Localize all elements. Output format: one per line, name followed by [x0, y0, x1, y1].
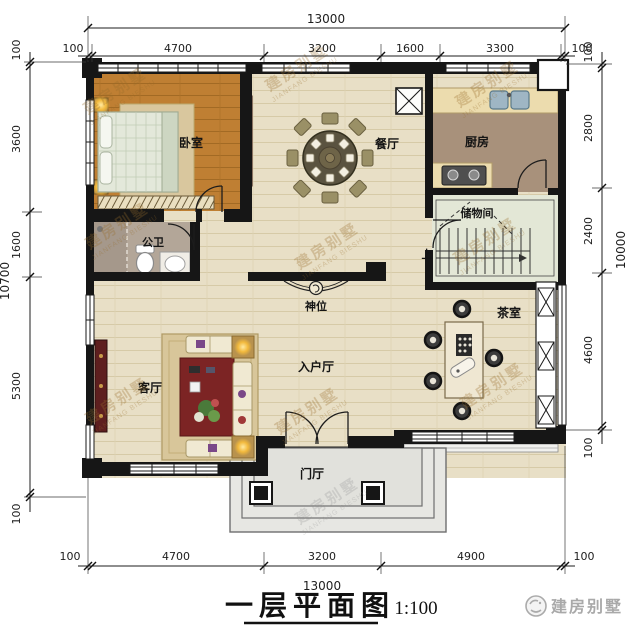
- label-storage-room: 储物间: [461, 206, 494, 220]
- wall-bedroom-right: [240, 62, 252, 222]
- wall-stairs-left-upper: [425, 195, 433, 218]
- toilet-bowl: [137, 253, 154, 274]
- burner: [448, 170, 458, 180]
- dim-right-100t: 100: [582, 42, 595, 63]
- window-bottom-tea: [412, 432, 514, 442]
- brand-logo: 建房别墅: [526, 596, 623, 616]
- label-dining-room: 餐厅: [375, 136, 399, 151]
- dim-top-4700: 4700: [164, 42, 192, 55]
- label-bedroom: 卧室: [179, 135, 203, 150]
- lamp-glow: [234, 438, 252, 456]
- pillow: [100, 152, 112, 184]
- dim-bottom-4700: 4700: [162, 550, 190, 563]
- dim-bottom-100r: 100: [574, 550, 595, 563]
- window-bottom-living: [130, 464, 218, 474]
- dim-top-100l: 100: [63, 42, 84, 55]
- dim-bottom-3200: 3200: [308, 550, 336, 563]
- faucet: [507, 93, 511, 97]
- window-x-panes: [538, 288, 554, 424]
- sofa-long: [233, 362, 252, 436]
- wall-bathroom-right: [190, 222, 200, 274]
- wall-middle-left: [86, 272, 200, 281]
- label-kitchen: 厨房: [465, 134, 489, 149]
- dim-right-total: 10000: [614, 231, 628, 269]
- plan-scale: 1:100: [394, 598, 437, 619]
- dim-top-3300: 3300: [486, 42, 514, 55]
- logo-icon: [526, 596, 546, 616]
- sink-basin: [511, 91, 529, 109]
- throw-pillow: [208, 444, 217, 452]
- dim-top-3200: 3200: [308, 42, 336, 55]
- bed-fold: [162, 112, 178, 192]
- dim-top-total: 13000: [307, 12, 345, 26]
- floor-plan-canvas: 卧室 餐厅 厨房 储物间 公卫 神位 客厅 入户厅 茶室 门厅 上 建房别墅JI…: [0, 0, 640, 631]
- remote: [189, 366, 200, 373]
- dimension-right: 100 2800 2400 4600 100 10000: [566, 42, 628, 459]
- dimension-top: 13000 100 4700 3200 1600 3300 100: [63, 12, 593, 62]
- wash-basin: [165, 256, 185, 272]
- label-shrine: 神位: [305, 299, 327, 313]
- logo-text: 建房别墅: [551, 597, 623, 616]
- dim-left-total: 10700: [0, 262, 12, 300]
- label-tea-room: 茶室: [496, 305, 521, 320]
- wall-kitchen-bottom: [425, 188, 518, 195]
- dim-left-100t: 100: [10, 40, 23, 61]
- plan-title: 一层平面图: [225, 591, 395, 622]
- window-top-bedroom: [98, 64, 246, 72]
- dim-right-2400: 2400: [582, 217, 595, 245]
- label-porch: 门厅: [300, 466, 324, 481]
- corner-column-box: [538, 60, 568, 90]
- label-stairs-up: 上: [422, 247, 433, 261]
- dim-top-1600: 1600: [396, 42, 424, 55]
- dim-right-4600: 4600: [582, 336, 595, 364]
- window-left-living: [86, 295, 94, 345]
- label-entry-hall: 入户厅: [298, 359, 334, 374]
- throw-pillow: [196, 340, 205, 348]
- burner: [469, 170, 479, 180]
- dim-right-2800: 2800: [582, 114, 595, 142]
- dimension-left: 100 3600 1600 5300 100 10700: [0, 40, 86, 525]
- wall-kitchen-left: [425, 62, 433, 195]
- dim-right-100b: 100: [582, 438, 595, 459]
- label-bathroom: 公卫: [142, 236, 164, 249]
- dim-left-1600: 1600: [10, 231, 23, 259]
- flue-shaft: [396, 88, 422, 114]
- column-hall: [366, 262, 386, 281]
- lamp-glow: [234, 338, 252, 356]
- dim-left-100b: 100: [10, 504, 23, 525]
- floor-plan-page: 卧室 餐厅 厨房 储物间 公卫 神位 客厅 入户厅 茶室 门厅 上 建房别墅JI…: [0, 0, 640, 631]
- corner-block: [82, 458, 102, 478]
- dim-left-5300: 5300: [10, 372, 23, 400]
- window-right-tea: [536, 282, 566, 428]
- title-block: 一层平面图 1:100: [225, 591, 438, 623]
- corner-block: [546, 426, 566, 444]
- dim-bottom-4900: 4900: [457, 550, 485, 563]
- dim-bottom-100l: 100: [60, 550, 81, 563]
- dim-left-3600: 3600: [10, 125, 23, 153]
